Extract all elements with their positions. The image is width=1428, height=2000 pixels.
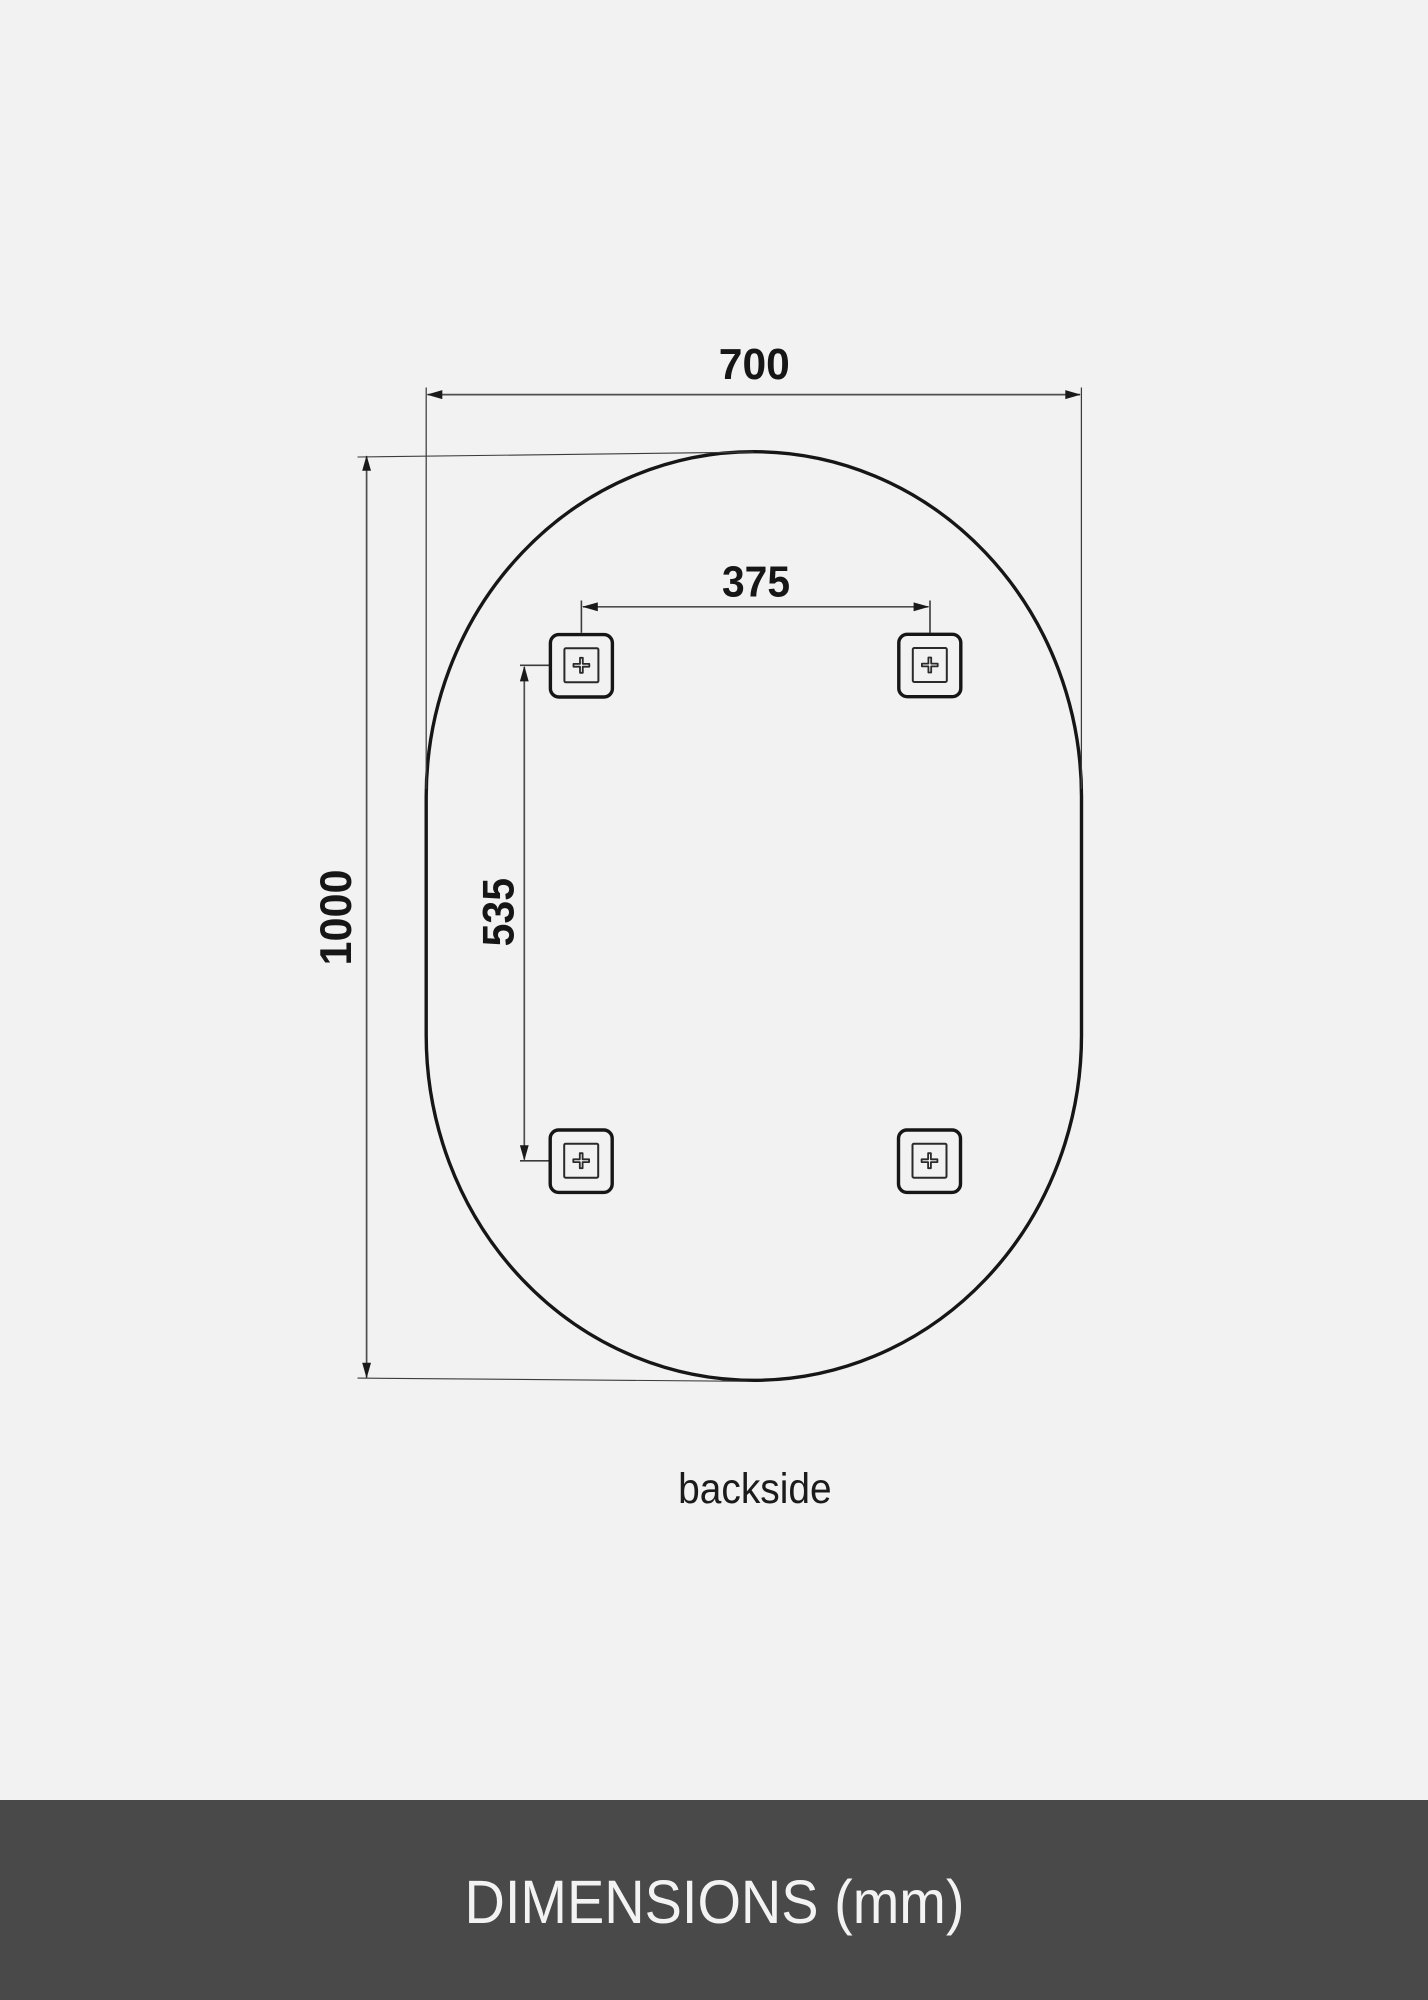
svg-text:700: 700 [719, 340, 790, 389]
svg-text:DIMENSIONS (mm): DIMENSIONS (mm) [465, 1868, 965, 1936]
svg-text:375: 375 [722, 558, 790, 607]
svg-text:backside: backside [678, 1466, 832, 1513]
svg-text:535: 535 [475, 878, 524, 946]
svg-text:1000: 1000 [312, 870, 361, 966]
